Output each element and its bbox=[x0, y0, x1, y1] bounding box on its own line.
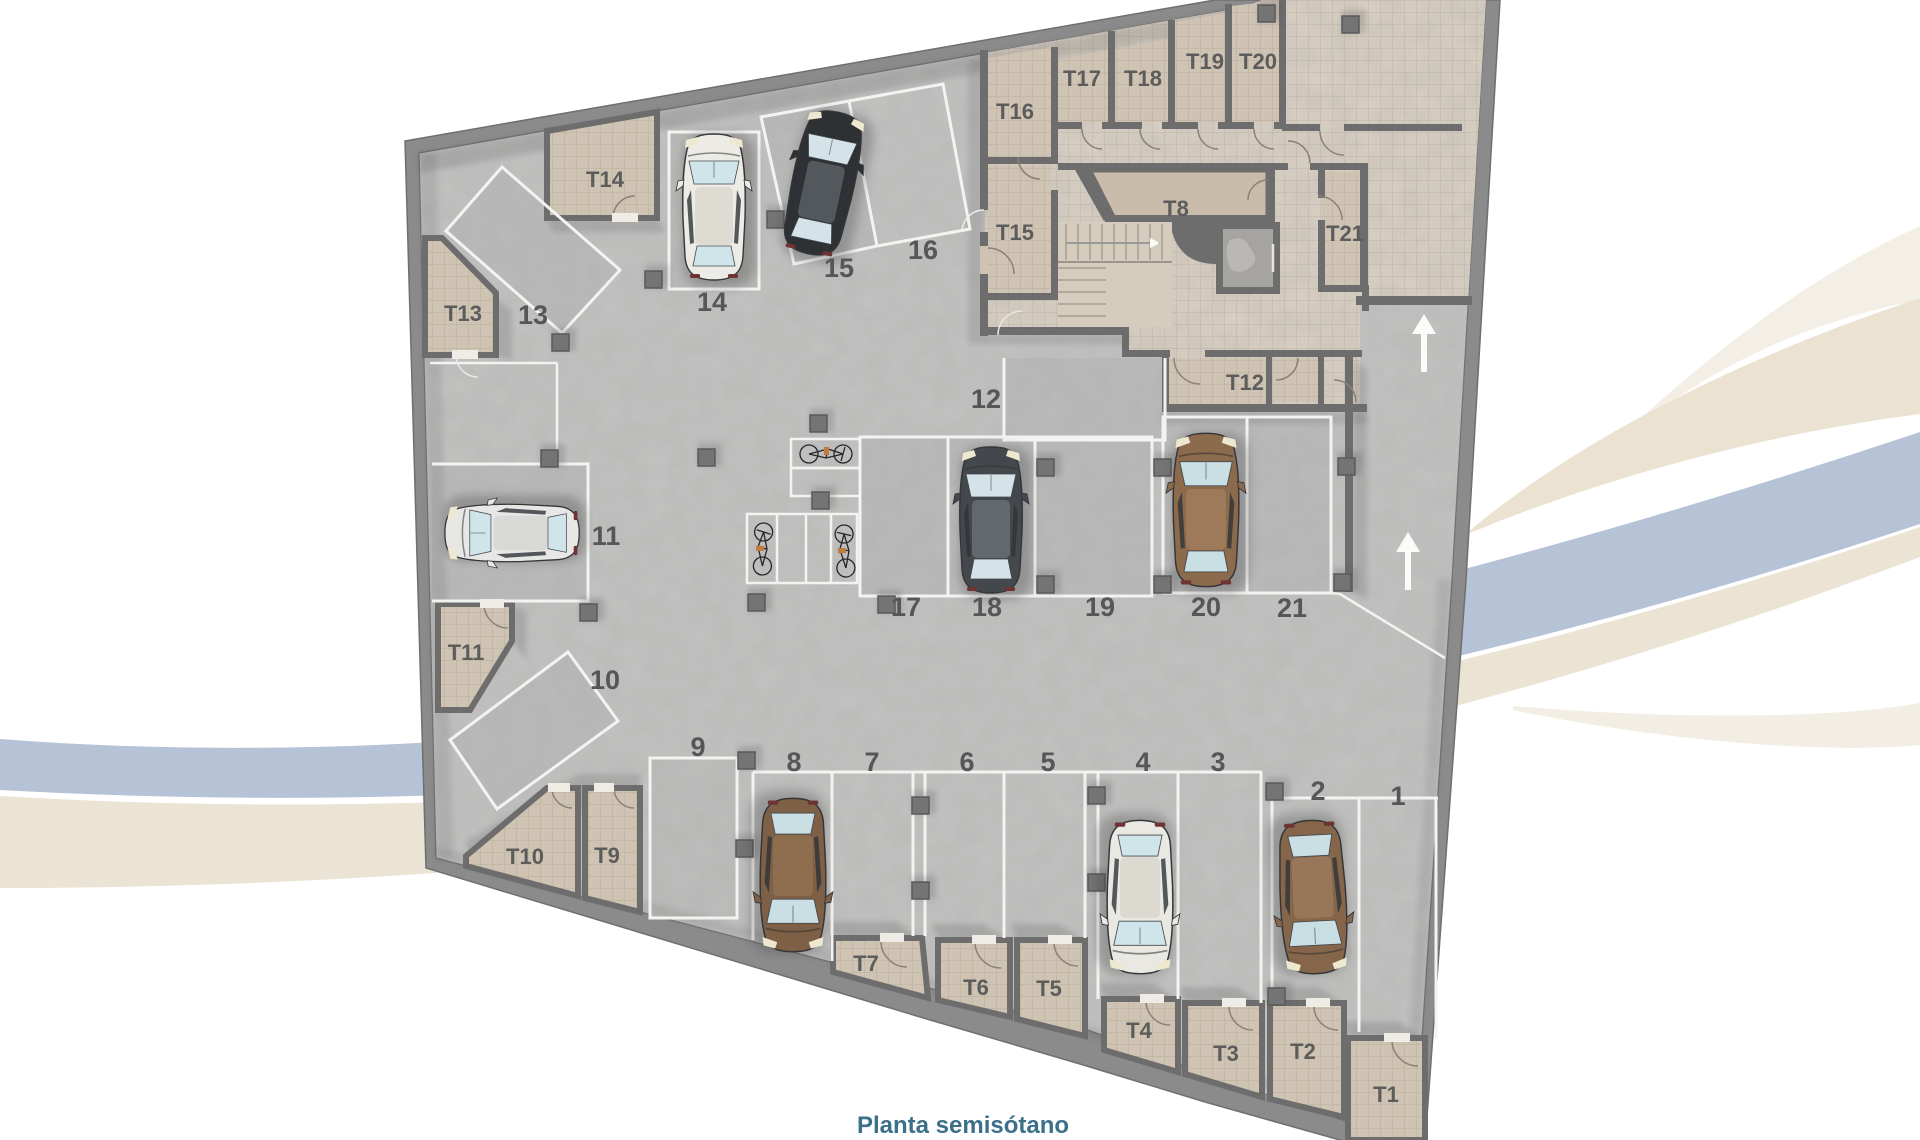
svg-text:11: 11 bbox=[592, 521, 621, 551]
svg-text:T14: T14 bbox=[586, 167, 625, 192]
svg-text:5: 5 bbox=[1040, 747, 1055, 777]
svg-text:16: 16 bbox=[908, 235, 938, 265]
svg-text:T2: T2 bbox=[1290, 1039, 1316, 1064]
svg-text:21: 21 bbox=[1277, 593, 1307, 623]
svg-text:9: 9 bbox=[690, 732, 705, 762]
svg-text:6: 6 bbox=[959, 747, 974, 777]
svg-text:T20: T20 bbox=[1239, 49, 1277, 74]
svg-text:12: 12 bbox=[971, 384, 1001, 414]
svg-text:T3: T3 bbox=[1213, 1041, 1239, 1066]
svg-text:T18: T18 bbox=[1124, 66, 1162, 91]
svg-text:T8: T8 bbox=[1163, 196, 1189, 221]
svg-text:19: 19 bbox=[1085, 592, 1115, 622]
svg-text:T7: T7 bbox=[853, 951, 879, 976]
svg-text:20: 20 bbox=[1191, 592, 1221, 622]
svg-text:14: 14 bbox=[697, 287, 727, 317]
svg-text:4: 4 bbox=[1135, 747, 1150, 777]
svg-text:T15: T15 bbox=[996, 220, 1034, 245]
svg-text:T10: T10 bbox=[506, 844, 544, 869]
svg-text:T11: T11 bbox=[448, 640, 485, 665]
svg-text:T17: T17 bbox=[1063, 66, 1101, 91]
svg-text:3: 3 bbox=[1210, 747, 1225, 777]
svg-text:1: 1 bbox=[1390, 781, 1405, 811]
svg-text:18: 18 bbox=[972, 592, 1002, 622]
svg-text:13: 13 bbox=[518, 300, 548, 330]
svg-text:15: 15 bbox=[824, 253, 854, 283]
svg-text:17: 17 bbox=[891, 592, 921, 622]
svg-text:T16: T16 bbox=[996, 99, 1034, 124]
svg-text:2: 2 bbox=[1310, 776, 1325, 806]
svg-text:T1: T1 bbox=[1373, 1082, 1399, 1107]
svg-text:T12: T12 bbox=[1226, 370, 1264, 395]
svg-text:T5: T5 bbox=[1036, 976, 1062, 1001]
svg-text:T21: T21 bbox=[1326, 221, 1364, 246]
svg-text:T9: T9 bbox=[594, 843, 620, 868]
svg-text:T13: T13 bbox=[444, 301, 482, 326]
svg-text:Planta semisótano: Planta semisótano bbox=[857, 1112, 1069, 1139]
svg-text:10: 10 bbox=[590, 665, 620, 695]
svg-text:7: 7 bbox=[864, 747, 879, 777]
svg-text:8: 8 bbox=[786, 747, 801, 777]
svg-text:T4: T4 bbox=[1126, 1018, 1152, 1043]
svg-text:T19: T19 bbox=[1186, 49, 1224, 74]
svg-text:T6: T6 bbox=[963, 975, 989, 1000]
